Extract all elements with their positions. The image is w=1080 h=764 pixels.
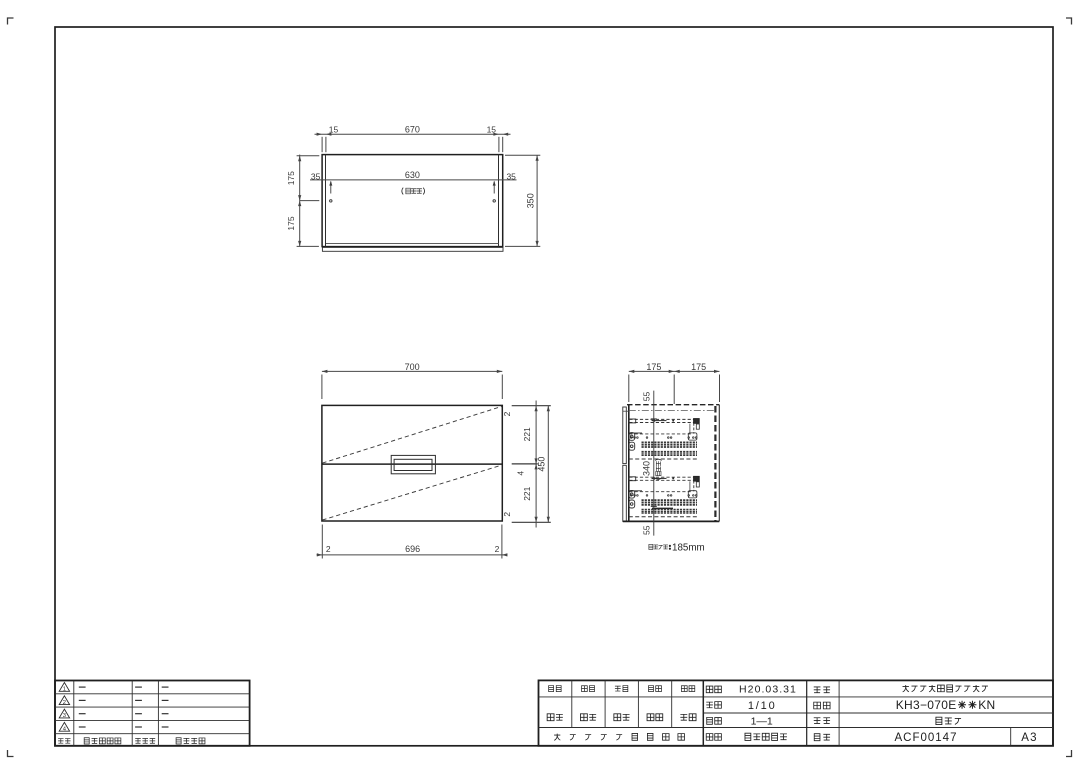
svg-text:350: 350 xyxy=(526,193,536,208)
svg-text:1—1: 1—1 xyxy=(751,715,773,727)
svg-text:2: 2 xyxy=(502,411,512,416)
svg-text:670: 670 xyxy=(405,125,420,135)
svg-text:15: 15 xyxy=(329,125,339,135)
svg-text:696: 696 xyxy=(405,544,420,554)
svg-text:185mm: 185mm xyxy=(672,542,705,553)
svg-text:ACF00147: ACF00147 xyxy=(895,732,958,744)
svg-text:175: 175 xyxy=(286,216,296,230)
svg-text:55: 55 xyxy=(641,525,651,535)
svg-text:700: 700 xyxy=(405,362,420,372)
svg-text:1/10: 1/10 xyxy=(748,700,777,712)
svg-text:KN: KN xyxy=(978,698,995,712)
svg-text:175: 175 xyxy=(646,362,661,372)
svg-text:2: 2 xyxy=(495,544,500,554)
svg-text:35: 35 xyxy=(506,171,516,181)
svg-text:A3: A3 xyxy=(1021,732,1037,744)
svg-text:3: 3 xyxy=(63,713,66,719)
svg-text:15: 15 xyxy=(487,125,497,135)
svg-text:2: 2 xyxy=(502,512,512,517)
svg-text:221: 221 xyxy=(522,427,532,441)
svg-text:35: 35 xyxy=(311,171,321,181)
svg-text:450: 450 xyxy=(537,457,547,472)
svg-text:2: 2 xyxy=(63,700,66,706)
svg-text:630: 630 xyxy=(405,170,420,180)
svg-text:55: 55 xyxy=(641,392,651,402)
svg-text:340: 340 xyxy=(642,461,652,476)
svg-text:221: 221 xyxy=(522,486,532,500)
svg-text:1: 1 xyxy=(63,687,66,693)
svg-text:KH3−070E: KH3−070E xyxy=(896,698,957,712)
svg-text:4: 4 xyxy=(516,471,526,476)
svg-text:H20.03.31: H20.03.31 xyxy=(739,684,797,696)
svg-text:175: 175 xyxy=(286,171,296,185)
svg-text:2: 2 xyxy=(326,544,331,554)
svg-text:175: 175 xyxy=(691,362,706,372)
